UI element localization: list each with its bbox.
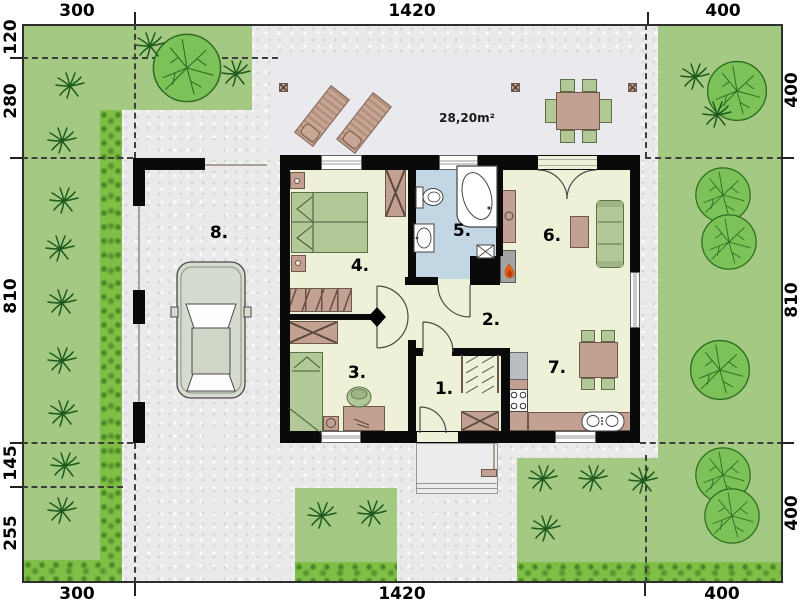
sideboard bbox=[502, 190, 516, 243]
terrace-post bbox=[279, 83, 288, 92]
dimension-label-right-400b: 400 bbox=[782, 495, 800, 531]
chimney bbox=[470, 256, 500, 285]
scale-tick bbox=[781, 442, 794, 444]
wall-room3-hall bbox=[408, 340, 416, 431]
wall-kitchen-west bbox=[501, 348, 510, 431]
terrace-chair bbox=[582, 79, 597, 92]
carport-post bbox=[133, 158, 145, 206]
room-label-5: 5. bbox=[453, 221, 471, 241]
dashed-line bbox=[645, 455, 647, 583]
terrace-table bbox=[556, 92, 600, 130]
dimension-label-top-400: 400 bbox=[705, 1, 741, 21]
dimension-label-top-300: 300 bbox=[59, 1, 95, 21]
dimension-label-top-1420: 1420 bbox=[388, 1, 435, 21]
side-table bbox=[323, 416, 339, 431]
carport-edge bbox=[138, 206, 140, 290]
room-label-1: 1. bbox=[435, 379, 453, 399]
dining-chair bbox=[581, 378, 595, 390]
wardrobe bbox=[385, 168, 406, 217]
dining-table bbox=[579, 342, 618, 378]
hedge-bottom-left bbox=[24, 560, 122, 581]
window-kitchen bbox=[555, 431, 596, 443]
room-label-7: 7. bbox=[548, 358, 566, 378]
carport-edge bbox=[205, 164, 267, 166]
dining-chair bbox=[581, 330, 595, 342]
terrace-area-label: 28,20m² bbox=[439, 111, 495, 125]
nightstand bbox=[291, 255, 306, 272]
dashed-line bbox=[640, 442, 783, 444]
lawn-right-strip bbox=[658, 26, 781, 458]
dashed-line bbox=[645, 157, 783, 159]
room-label-4: 4. bbox=[351, 256, 369, 276]
double-bed bbox=[291, 192, 368, 253]
terrace-chair bbox=[560, 130, 575, 143]
dining-chair bbox=[601, 330, 615, 342]
dimension-label-left-255: 255 bbox=[1, 515, 21, 551]
wall-bathroom-west bbox=[408, 155, 416, 285]
scale-tick bbox=[10, 486, 23, 488]
hedge-bottom-right bbox=[517, 562, 781, 581]
stove bbox=[509, 389, 528, 412]
scale-tick bbox=[10, 157, 23, 159]
porch-step bbox=[417, 488, 497, 489]
dimension-label-bottom-1420: 1420 bbox=[378, 584, 425, 603]
terrace-chair bbox=[599, 99, 612, 123]
dimension-label-left-120: 120 bbox=[1, 19, 21, 55]
terrace-door-opening bbox=[538, 156, 597, 169]
kitchen-counter bbox=[528, 412, 631, 431]
terrace-post bbox=[511, 83, 520, 92]
scale-tick bbox=[134, 583, 136, 596]
window-bathroom bbox=[439, 155, 478, 170]
wall-hall1-north bbox=[452, 348, 505, 356]
dashed-line bbox=[22, 57, 278, 59]
lawn-top-left bbox=[24, 26, 252, 110]
dresser bbox=[288, 288, 352, 312]
dimension-label-bottom-300: 300 bbox=[59, 584, 95, 603]
fridge bbox=[509, 352, 528, 380]
scale-tick bbox=[647, 12, 649, 24]
porch-rail bbox=[493, 444, 495, 469]
dashed-line bbox=[22, 442, 133, 444]
coffee-table bbox=[570, 216, 589, 248]
hedge-bottom-middle bbox=[295, 562, 397, 581]
dashed-line bbox=[645, 24, 647, 158]
lawn-left-strip bbox=[24, 110, 100, 560]
wardrobe bbox=[288, 321, 338, 344]
dashed-line bbox=[22, 486, 123, 488]
terrace-chair bbox=[560, 79, 575, 92]
hedge-left bbox=[100, 110, 122, 560]
wall-room4-room3 bbox=[287, 314, 377, 320]
closet-wardrobe bbox=[461, 411, 499, 431]
dashed-line bbox=[134, 24, 136, 158]
sofa-armrest bbox=[597, 261, 623, 267]
terrace-chair bbox=[582, 130, 597, 143]
room-label-6: 6. bbox=[543, 226, 561, 246]
scale-tick bbox=[134, 12, 136, 24]
scale-tick bbox=[644, 583, 646, 596]
dimension-label-left-145: 145 bbox=[1, 445, 21, 481]
lawn-bottom-middle bbox=[295, 488, 397, 562]
window-room3 bbox=[321, 431, 361, 443]
wall-hall1-north bbox=[416, 348, 423, 356]
scale-tick bbox=[10, 57, 23, 59]
wall-west bbox=[280, 155, 290, 443]
doormat bbox=[481, 469, 497, 477]
dimension-label-right-810: 810 bbox=[782, 282, 800, 318]
scale-tick bbox=[10, 442, 23, 444]
terrace-post bbox=[628, 83, 637, 92]
window-living bbox=[630, 272, 640, 328]
dining-chair bbox=[601, 378, 615, 390]
dashed-line bbox=[134, 443, 136, 583]
room-label-2: 2. bbox=[482, 310, 500, 330]
single-bed bbox=[289, 352, 323, 434]
carport-post bbox=[133, 402, 145, 443]
nightstand bbox=[290, 172, 305, 189]
carport-edge bbox=[138, 324, 140, 402]
room-label-8: 8. bbox=[210, 223, 228, 243]
wall-bathroom-south bbox=[405, 277, 438, 285]
dimension-label-bottom-400: 400 bbox=[704, 584, 740, 603]
dimension-label-left-810: 810 bbox=[1, 278, 21, 314]
dimension-label-left-280: 280 bbox=[1, 83, 21, 119]
dashed-line bbox=[22, 157, 133, 159]
lawn-bottom-right bbox=[517, 458, 781, 562]
site-plan: 1. 2. 3. 4. 5. 6. 7. 8. 28,20m² 300 1420… bbox=[0, 0, 800, 603]
window-bedroom bbox=[321, 155, 362, 170]
desk bbox=[343, 406, 385, 431]
room-label-3: 3. bbox=[348, 363, 366, 383]
porch-step bbox=[417, 483, 497, 484]
sofa-armrest bbox=[597, 201, 623, 207]
sofa bbox=[596, 200, 624, 268]
dimension-label-right-400: 400 bbox=[782, 72, 800, 108]
scale-tick bbox=[781, 157, 794, 159]
entrance-door-opening bbox=[417, 432, 458, 442]
carport-post bbox=[133, 290, 145, 324]
wall-bathroom-east bbox=[496, 155, 503, 256]
